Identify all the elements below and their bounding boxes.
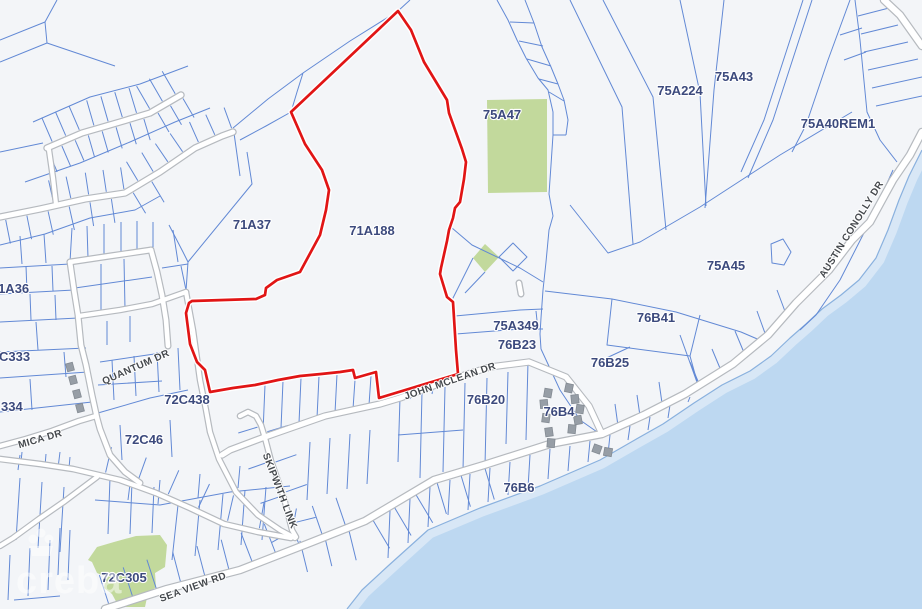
- svg-text:75A349: 75A349: [493, 318, 539, 333]
- svg-text:76B6: 76B6: [503, 480, 534, 495]
- svg-text:334: 334: [1, 399, 23, 414]
- svg-text:75A47: 75A47: [483, 107, 521, 122]
- svg-text:71A36: 71A36: [0, 281, 29, 296]
- svg-text:75A40REM1: 75A40REM1: [801, 116, 875, 131]
- svg-text:75A45: 75A45: [707, 258, 745, 273]
- svg-text:76B41: 76B41: [637, 310, 675, 325]
- svg-text:76B4: 76B4: [543, 404, 575, 419]
- svg-text:71A37: 71A37: [233, 217, 271, 232]
- svg-text:72C438: 72C438: [164, 392, 210, 407]
- svg-text:76B20: 76B20: [467, 392, 505, 407]
- svg-text:71A188: 71A188: [349, 223, 395, 238]
- svg-text:76B23: 76B23: [498, 337, 536, 352]
- svg-text:creba: creba: [16, 560, 122, 602]
- svg-text:76B25: 76B25: [591, 355, 629, 370]
- svg-text:75A43: 75A43: [715, 69, 753, 84]
- svg-text:75A224: 75A224: [657, 83, 703, 98]
- svg-text:72C46: 72C46: [125, 432, 163, 447]
- svg-text:C333: C333: [0, 349, 30, 364]
